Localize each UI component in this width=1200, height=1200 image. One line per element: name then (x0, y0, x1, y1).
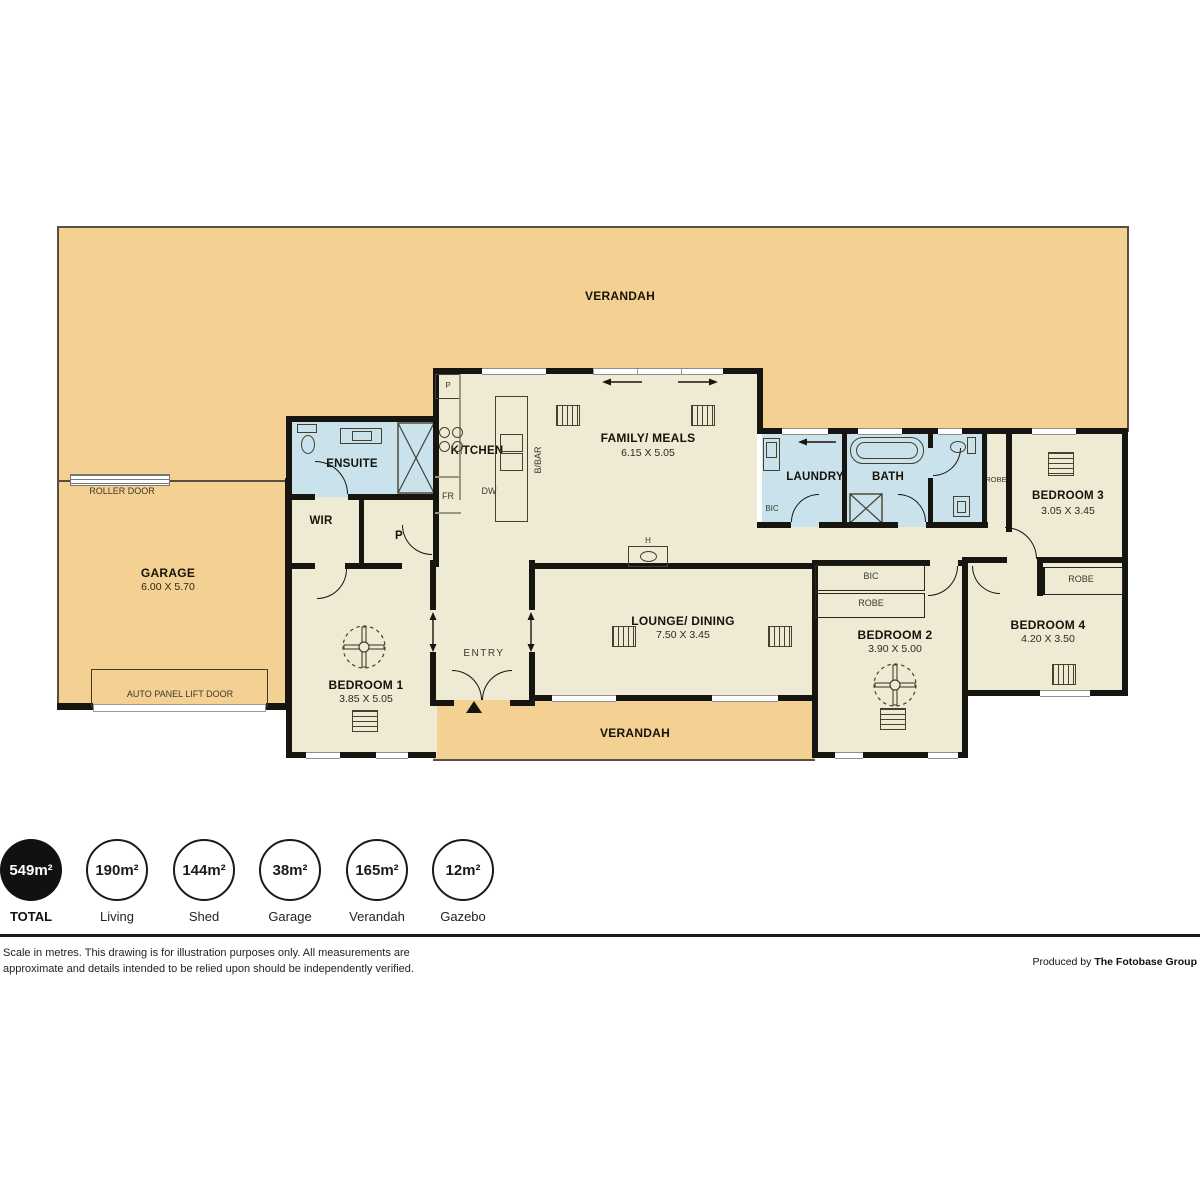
verandah-outline (57, 226, 59, 708)
garage-dims: 6.00 X 5.70 (141, 581, 195, 593)
shower-icon (397, 422, 435, 494)
wall-segment (1037, 557, 1128, 563)
legend-label-gazebo: Gazebo (440, 909, 486, 924)
verandah-left-area (57, 373, 437, 422)
cooktop-burner-icon (452, 441, 463, 452)
legend-label-living: Living (100, 909, 134, 924)
robe-cabinet (815, 593, 925, 618)
ceiling-fan-icon (341, 624, 387, 670)
bic-cabinet (815, 565, 925, 591)
bedroom4-dims: 4.20 X 3.50 (1021, 633, 1075, 645)
legend-circle-verandah: 165m² (346, 839, 408, 901)
bedroom3-label: BEDROOM 3 (1032, 490, 1104, 502)
wall-segment (757, 522, 791, 528)
family-meals-dims: 6.15 X 5.05 (621, 447, 675, 459)
fridge-label: FR (442, 491, 454, 501)
window (1032, 428, 1076, 435)
window (552, 695, 616, 702)
wall-segment (962, 557, 968, 758)
robe-bed3-label: ROBE (985, 475, 1006, 484)
kitchen-sink-icon (500, 434, 523, 452)
vent-icon (612, 626, 636, 647)
legend-circle-total: 549m² (0, 839, 62, 901)
wall-segment (757, 368, 763, 434)
window (712, 695, 778, 702)
slider-arrow-right-icon (678, 377, 718, 387)
wall-segment (958, 560, 968, 566)
cooktop-burner-icon (439, 427, 450, 438)
wall-segment (1040, 567, 1045, 595)
lounge-dining-label: LOUNGE/ DINING (631, 614, 735, 628)
wall-segment (928, 478, 933, 528)
window (782, 428, 828, 435)
pantry-label: P (395, 530, 403, 542)
wall-segment (430, 560, 436, 610)
breakfast-bar-label: B/BAR (533, 446, 543, 473)
laundry-trough-icon (766, 442, 777, 458)
wall-segment (982, 428, 987, 528)
window (1040, 690, 1090, 697)
produced-by-prefix: Produced by (1032, 956, 1091, 968)
robe4-cabinet (1042, 567, 1123, 595)
verandah-bottom-label: VERANDAH (600, 726, 670, 740)
verandah-outline (433, 759, 815, 761)
kitchen-counter-line (435, 512, 461, 514)
family-meals-label: FAMILY/ MEALS (601, 431, 696, 445)
legend-circle-garage: 38m² (259, 839, 321, 901)
bedroom2-dims: 3.90 X 5.00 (868, 643, 922, 655)
wall-segment (57, 703, 93, 710)
kitchen-counter-line (435, 476, 461, 478)
window (928, 752, 958, 759)
wall-segment (348, 494, 439, 500)
slider-arrow-left-icon (602, 377, 642, 387)
cooktop-burner-icon (439, 441, 450, 452)
vent-icon (691, 405, 715, 426)
legend-label-verandah: Verandah (349, 909, 405, 924)
verandah-outline (57, 226, 1129, 228)
legend-circle-shed: 144m² (173, 839, 235, 901)
wall-segment (842, 432, 847, 528)
wall-segment (286, 416, 439, 422)
window (835, 752, 863, 759)
floorplan-page: VERANDAH ROLLER DOOR GARAGE 6.00 X 5.70 … (0, 0, 1200, 1200)
heater-icon (880, 708, 906, 730)
verandah-right-area (757, 373, 1129, 432)
vent-icon (768, 626, 792, 647)
auto-panel-lift-door-box (91, 669, 268, 707)
roller-door-label: ROLLER DOOR (89, 486, 155, 496)
entry-marker-icon (466, 701, 482, 713)
ensuite-label: ENSUITE (326, 458, 378, 470)
bathtub-icon (856, 442, 918, 459)
vent-icon (556, 405, 580, 426)
toilet-icon (950, 441, 966, 453)
wall-segment (529, 560, 535, 610)
kitchen-sink-icon (500, 453, 523, 471)
legend-circle-gazebo: 12m² (432, 839, 494, 901)
legend-value: 165m² (355, 862, 398, 879)
wir-label: WIR (309, 515, 332, 527)
kitchen-pantry-box (435, 374, 461, 399)
wall-segment (926, 522, 988, 528)
roller-door-icon (70, 474, 170, 486)
laundry-label: LAUNDRY (786, 471, 844, 483)
bath-label: BATH (872, 471, 904, 483)
legend-value: 144m² (182, 862, 225, 879)
verandah-outline (1127, 226, 1129, 432)
footer-divider (0, 934, 1200, 937)
legend-label-garage: Garage (268, 909, 311, 924)
entry-label: ENTRY (463, 648, 504, 659)
wall-segment (530, 563, 814, 569)
toilet-icon (297, 424, 317, 433)
wall-segment (430, 652, 436, 706)
wall-segment (928, 432, 933, 448)
heater-icon (352, 710, 378, 732)
window (938, 428, 962, 435)
laundry-bic-label: BIC (765, 504, 778, 513)
ceiling-fan-icon (872, 662, 918, 708)
heater-icon (1048, 452, 1074, 476)
shower-icon (849, 493, 883, 524)
window (306, 752, 340, 759)
window (376, 752, 408, 759)
producer-credit: Produced by The Fotobase Group (1032, 956, 1197, 968)
lounge-dining-dims: 7.50 X 3.45 (656, 629, 710, 641)
wall-segment (1006, 428, 1012, 532)
wall-segment (965, 557, 1007, 563)
toilet-icon (967, 437, 976, 454)
disclaimer-text: Scale in metres. This drawing is for ill… (3, 946, 455, 978)
bedroom4-label: BEDROOM 4 (1011, 618, 1086, 632)
sliding-door-window (593, 368, 723, 375)
produced-by-name: The Fotobase Group (1094, 956, 1197, 968)
legend-label-total: TOTAL (10, 909, 52, 924)
opening-arrow-icon (427, 612, 439, 652)
laundry-arrow-icon (798, 437, 836, 447)
basin-icon (957, 501, 966, 513)
garage-door-opening (93, 704, 266, 712)
cooktop-burner-icon (452, 427, 463, 438)
vent-icon (1052, 664, 1076, 685)
opening-arrow-icon (525, 612, 537, 652)
window (482, 368, 546, 375)
bedroom1-dims: 3.85 X 5.05 (339, 693, 393, 705)
legend-circle-living: 190m² (86, 839, 148, 901)
wall-segment (819, 522, 898, 528)
legend-value: 12m² (445, 862, 480, 879)
bedroom2-label: BEDROOM 2 (858, 628, 933, 642)
toilet-icon (301, 435, 315, 454)
verandah-top-label: VERANDAH (585, 289, 655, 303)
wall-segment (345, 563, 402, 569)
bedroom3-dims: 3.05 X 3.45 (1041, 505, 1095, 517)
bedroom1-label: BEDROOM 1 (329, 678, 404, 692)
wall-segment (285, 478, 291, 710)
window (858, 428, 902, 435)
vanity-icon (352, 431, 372, 441)
verandah-outline (170, 480, 290, 482)
hot-water-unit (640, 551, 657, 562)
verandah-left-area-2 (57, 422, 291, 480)
wall-segment (266, 703, 287, 710)
legend-value: 190m² (95, 862, 138, 879)
garage-label: GARAGE (141, 566, 195, 580)
legend-value: 38m² (272, 862, 307, 879)
wall-segment (359, 497, 364, 567)
legend-value: 549m² (9, 862, 52, 879)
legend-label-shed: Shed (189, 909, 219, 924)
wall-segment (529, 652, 535, 701)
hot-water-label: H (645, 536, 651, 545)
